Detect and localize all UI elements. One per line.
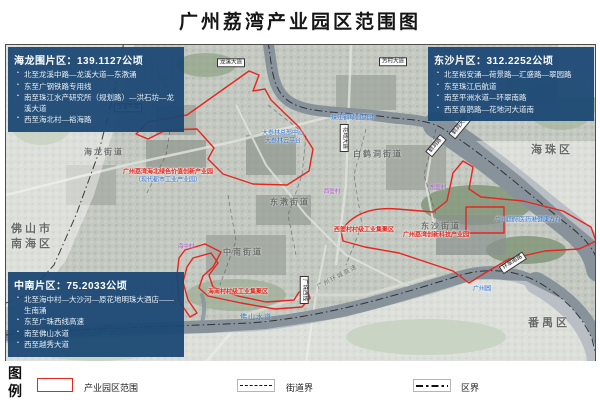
info-box-hailongwei: 海龙围片区：139.1127公顷 北至龙溪中路—龙溪大道—东漖涌东至广钢铁路专用… (8, 47, 184, 132)
info-box-title: 中南片区：75.2033公顷 (14, 277, 178, 292)
park-outline-swatch (37, 378, 73, 392)
boundary-list: 北至裕安涌—荷景路—汇盛路—翠园路东至珠江后航道南至平洲水道—环翠南路西至喜鹊路… (434, 70, 588, 115)
boundary-item: 北至龙溪中路—龙溪大道—东漖涌 (16, 70, 176, 81)
boundary-item: 北至海中村—大沙河—原花地明珠大酒店——生南涌 (16, 295, 176, 316)
poster: 广州荔湾产业园区范围图 (0, 0, 600, 406)
legend-label-district: 区界 (461, 381, 479, 394)
boundary-list: 北至龙溪中路—龙溪大道—东漖涌东至广钢铁路专用线南至珠江水产研究所（规划路）—洪… (14, 70, 178, 126)
dashdot-line-icon (416, 385, 448, 387)
district-boundary-swatch (413, 379, 451, 392)
boundary-item: 西至越秀大道 (16, 340, 176, 351)
info-box-dongsha: 东沙片区：312.2252公顷 北至裕安涌—荷景路—汇盛路—翠园路东至珠江后航道… (428, 47, 594, 121)
legend: 图例 产业园区范围 街道界 区界 (0, 361, 600, 406)
boundary-item: 西至海北村—裕海路 (16, 115, 176, 126)
street-boundary-swatch (237, 379, 275, 392)
boundary-item: 北至裕安涌—荷景路—汇盛路—翠园路 (436, 70, 586, 81)
page-title: 广州荔湾产业园区范围图 (0, 7, 600, 34)
boundary-item: 南至平洲水道—环翠南路 (436, 93, 586, 104)
legend-heading: 图例 (8, 366, 24, 401)
boundary-item: 南至珠江水产研究所（规划路）—洪石坊—龙溪大道 (16, 93, 176, 114)
info-box-title: 海龙围片区：139.1127公顷 (14, 52, 178, 67)
legend-label-street: 街道界 (286, 381, 313, 394)
boundary-item: 东至珠江后航道 (436, 82, 586, 93)
boundary-item: 东至广钢铁路专用线 (16, 82, 176, 93)
boundary-list: 北至海中村—大沙河—原花地明珠大酒店——生南涌东至广珠西线高速南至佛山水道西至越… (14, 295, 178, 351)
legend-label-park: 产业园区范围 (84, 381, 138, 394)
info-box-zhongnan: 中南片区：75.2033公顷 北至海中村—大沙河—原花地明珠大酒店——生南涌东至… (8, 272, 184, 357)
boundary-item: 西至喜鹊路—花地河大道南 (436, 105, 586, 116)
boundary-item: 东至广珠西线高速 (16, 317, 176, 328)
info-box-title: 东沙片区：312.2252公顷 (434, 52, 588, 67)
dashed-line-icon (240, 385, 272, 386)
boundary-item: 南至佛山水道 (16, 329, 176, 340)
